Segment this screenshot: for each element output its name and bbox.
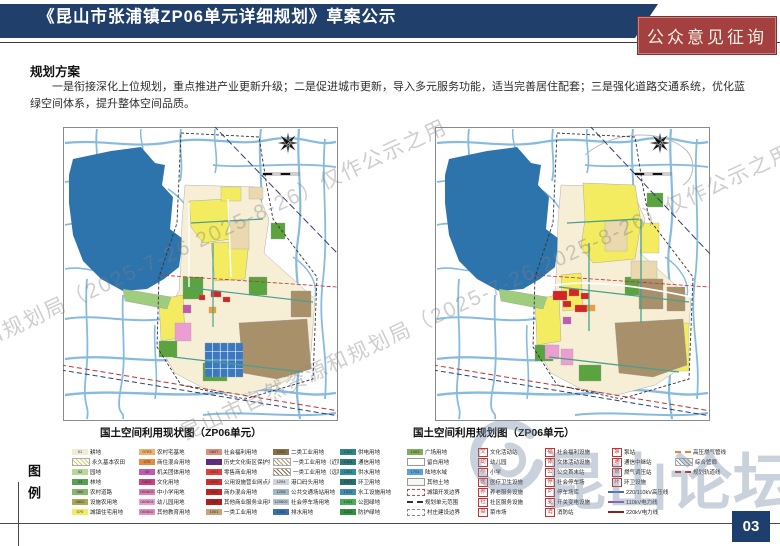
legend-swatch: 1204 xyxy=(273,479,289,486)
kindergarten-icon: 幼 xyxy=(478,458,488,467)
legend-item: 1402防护绿地 xyxy=(340,507,406,517)
legend-swatch: 0906 xyxy=(206,479,222,486)
poster-page: 《昆山市张浦镇ZP06单元详细规划》草案公示 公众意见征询 规划方案 一是衔接深… xyxy=(0,0,780,546)
legend-item: 医医疗卫生设施 xyxy=(474,477,540,487)
legend-swatch: 03 xyxy=(72,479,88,486)
compass-rose-icon xyxy=(277,132,299,154)
telecom-icon: 通 xyxy=(612,458,622,467)
parking-garage-icon: P xyxy=(545,488,555,497)
legend-item-label: 农村道路 xyxy=(90,488,112,496)
legend-item-label: 城镇住宅用地 xyxy=(90,508,123,516)
legend-item-label: 供电用地 xyxy=(358,448,380,456)
legend-item: 消消防站 xyxy=(541,507,607,517)
culture-station-icon: 文 xyxy=(478,448,488,457)
legend-swatch: 0902 xyxy=(206,489,222,496)
legend-item: 环环卫设施 xyxy=(608,477,674,487)
market-icon: 菜 xyxy=(478,508,488,517)
clinic-icon: 医 xyxy=(478,478,488,487)
legend-item-label: 220kV电力线 xyxy=(626,508,658,516)
legend-swatch: 080804 xyxy=(139,499,155,506)
legend-item: 福社会福利设施 xyxy=(541,447,607,457)
legend-item: 1312水工设施用地 xyxy=(340,487,406,497)
community-center-icon: 社 xyxy=(478,498,488,507)
legend-item-label: 通信用地 xyxy=(358,458,380,466)
legend-item-label: 商住混合用地 xyxy=(157,458,190,466)
legend-swatch xyxy=(407,458,425,467)
legend-item-label: 一类工业用地 xyxy=(224,508,257,516)
legend-item-label: 社会福利用地 xyxy=(224,448,257,456)
legend-swatch: 075 xyxy=(139,459,155,466)
legend-item: 规划轨道线 xyxy=(675,467,741,477)
legend-item-label: 防护绿地 xyxy=(358,508,380,516)
legend-swatch: 1402 xyxy=(340,509,356,516)
legend-label: 图例 xyxy=(24,464,43,508)
legend-swatch xyxy=(675,458,693,467)
legend-item: 小小学 xyxy=(474,467,540,477)
legend-item: 停社会停车场 xyxy=(541,477,607,487)
legend-item: 1208公共交通场站用地 xyxy=(273,487,339,497)
legend-item-label: 公交首末站 xyxy=(557,468,585,476)
legend-swatch: 1307 xyxy=(340,479,356,486)
legend-item-label: 消防站 xyxy=(557,508,574,516)
legend-swatch: 1312 xyxy=(340,489,356,496)
legend-item-label: 其他商业服务业用地 xyxy=(224,498,270,506)
legend-item: 080803中小学用地 xyxy=(139,487,205,497)
legend-item: 02园地 xyxy=(72,467,138,477)
legend-item: 养养老服务设施 xyxy=(474,487,540,497)
legend-swatch: 0802 xyxy=(139,479,155,486)
legend-swatch: 1304 xyxy=(340,459,356,466)
legend-item-label: 通信中继站 xyxy=(624,458,652,466)
legend-item: 075商住混合用地 xyxy=(139,457,205,467)
legend-swatch xyxy=(273,468,291,477)
legend-swatch: 1401 xyxy=(340,499,356,506)
legend-item: 永久基本农田 xyxy=(72,457,138,467)
legend-item-label: 园地 xyxy=(90,468,101,476)
legend-item: P停车场库 xyxy=(541,487,607,497)
legend-swatch xyxy=(608,511,624,513)
legend-item-label: 110kV电力线 xyxy=(626,498,658,506)
legend-item-label: 留白用地 xyxy=(427,458,449,466)
legend-item: 高压燃气管线 xyxy=(675,447,741,457)
compass-rose-icon xyxy=(649,132,671,154)
legend-item: 1307环卫用地 xyxy=(340,477,406,487)
legend-item: 08机关团体用地 xyxy=(139,467,205,477)
legend-item-label: 陆地水域 xyxy=(425,468,447,476)
legend-swatch xyxy=(206,459,222,466)
legend-item: 1304通信用地 xyxy=(340,457,406,467)
legend-item-label: 停车场库 xyxy=(557,488,579,496)
legend-item: 060农村道路 xyxy=(72,487,138,497)
legend-item: 1301供水用地 xyxy=(340,467,406,477)
legend-item-label: 永久基本农田 xyxy=(92,458,125,466)
legend-item-label: 文体活动设施 xyxy=(557,458,590,466)
legend-item-label: 社会停车场用地 xyxy=(291,498,330,506)
public-consultation-badge: 公众意见征询 xyxy=(637,16,777,55)
legend-swatch: 0905 xyxy=(206,499,222,506)
legend-item-label: 社会福利设施 xyxy=(557,448,590,456)
welfare-icon: 福 xyxy=(545,448,555,457)
legend-swatch: 1306 xyxy=(273,509,289,516)
legend-item: 变开关变电设施 xyxy=(541,497,607,507)
legend-item-label: 文化用地 xyxy=(157,478,179,486)
legend-item: 城镇开发边界 xyxy=(407,487,473,497)
legend-item: 一类工业用地（远期更新） xyxy=(273,467,339,477)
legend-swatch xyxy=(608,501,624,503)
legend-item: 080802其他教育用地 xyxy=(139,507,205,517)
legend-swatch: 1208 xyxy=(273,489,289,496)
legend-item-label: 规划单元范围 xyxy=(425,498,458,506)
legend-item: 泵泵站 xyxy=(608,447,674,457)
legend-item: 规划单元范围 xyxy=(407,497,473,507)
legend-item-label: 菜市场 xyxy=(490,508,507,516)
legend-item-label: 医疗卫生设施 xyxy=(490,478,523,486)
legend-swatch: 0807 xyxy=(206,449,222,456)
section-paragraph: 一是衔接深化上位规划，重点推进产业更新升级；二是促进城市更新，导入多元服务功能，… xyxy=(30,79,752,113)
legend-item: 1403广场用地 xyxy=(407,447,473,457)
legend-item: 1302供电用地 xyxy=(340,447,406,457)
scale-bar xyxy=(263,173,299,175)
legend-item-label: 规划轨道线 xyxy=(693,468,721,476)
parking-icon: 停 xyxy=(545,478,555,487)
legend-item-label: 供水用地 xyxy=(358,468,380,476)
legend-item-label: 耕地 xyxy=(90,448,101,456)
primary-school-icon: 小 xyxy=(478,468,488,477)
legend-item-label: 环卫用地 xyxy=(358,478,380,486)
legend-item-label: 农村宅基地 xyxy=(157,448,185,456)
legend-swatch: 1301 xyxy=(340,469,356,476)
legend-item-label: 一类工业用地（远期更新） xyxy=(293,468,339,476)
legend-item-label: 其他教育用地 xyxy=(157,508,190,516)
legend-item-label: 林地 xyxy=(90,478,101,486)
map-caption-planning: 国土空间利用规划图（ZP06单元） xyxy=(413,425,575,440)
legend-item: 体文体活动设施 xyxy=(541,457,607,467)
legend-item-label: 商办混合用地 xyxy=(224,488,257,496)
fire-station-icon: 消 xyxy=(545,508,555,517)
map-current-status xyxy=(63,127,338,421)
legend-item-label: 燃气调压站 xyxy=(624,468,652,476)
legend-swatch xyxy=(407,489,425,496)
legend-swatch: 060 xyxy=(72,489,88,496)
legend-item: 1204港口码头用地 xyxy=(273,477,339,487)
legend-item-label: 中小学用地 xyxy=(157,488,185,496)
gas-station-icon: 燃 xyxy=(612,468,622,477)
legend-item: 社社区服务设施 xyxy=(474,497,540,507)
legend: 01耕地永久基本农田02园地03林地060农村道路0602设施农用地070城镇住… xyxy=(72,447,736,517)
legend-item: 历史文化街区保护控制范围 xyxy=(206,457,272,467)
legend-item-label: 历史文化街区保护控制范围 xyxy=(224,458,270,466)
sanitation-icon: 环 xyxy=(612,478,622,487)
legend-item-label: 排水用地 xyxy=(291,508,313,516)
legend-item-label: 公园绿地 xyxy=(358,498,380,506)
legend-item: 0906公用设施营业网点用地 xyxy=(206,477,272,487)
legend-swatch: 01 xyxy=(72,449,88,456)
legend-swatch xyxy=(273,458,291,467)
legend-item-label: 综合管廊 xyxy=(695,458,717,466)
legend-item-label: 公共交通场站用地 xyxy=(291,488,335,496)
legend-swatch: 1403 xyxy=(407,449,423,456)
legend-swatch: 080802 xyxy=(139,509,155,516)
legend-item: 通通信中继站 xyxy=(608,457,674,467)
legend-swatch xyxy=(407,478,425,487)
legend-swatch: 1302 xyxy=(340,449,356,456)
footer-vertical-rule xyxy=(18,482,19,546)
legend-item: 留白用地 xyxy=(407,457,473,467)
legend-item: 菜菜市场 xyxy=(474,507,540,517)
legend-swatch xyxy=(72,458,90,467)
legend-item: 0802文化用地 xyxy=(139,477,205,487)
legend-swatch xyxy=(407,509,425,516)
legend-item: 0602设施农用地 xyxy=(72,497,138,507)
legend-item-label: 港口码头用地 xyxy=(291,478,324,486)
legend-item-label: 村庄建设边界 xyxy=(427,508,460,516)
legend-item: 综合管廊 xyxy=(675,457,741,467)
section-heading: 规划方案 xyxy=(30,61,80,80)
legend-item-label: 幼儿园 xyxy=(490,458,507,466)
legend-item: 1701陆地水域 xyxy=(407,467,473,477)
legend-item: 0901零售商业用地 xyxy=(206,467,272,477)
legend-item-label: 设施农用地 xyxy=(90,498,118,506)
legend-swatch: 070 xyxy=(72,509,88,516)
legend-item: 110kV电力线 xyxy=(608,497,674,507)
legend-item: 220/110kV高压线 xyxy=(608,487,674,497)
legend-item-label: 220/110kV高压线 xyxy=(626,488,668,496)
legend-item: 0703农村宅基地 xyxy=(139,447,205,457)
legend-item-label: 一类工业用地（近期更新） xyxy=(293,458,339,466)
legend-item: 1306排水用地 xyxy=(273,507,339,517)
legend-swatch: 0602 xyxy=(72,499,88,506)
page-title: 《昆山市张浦镇ZP06单元详细规划》草案公示 xyxy=(38,0,396,34)
page-number: 03 xyxy=(732,511,770,542)
legend-swatch: 1002 xyxy=(273,449,289,456)
legend-item: 1002二类工业用地 xyxy=(273,447,339,457)
legend-item: 080804幼儿园用地 xyxy=(139,497,205,507)
legend-item-label: 泵站 xyxy=(624,448,635,456)
legend-swatch: 08 xyxy=(139,469,155,476)
legend-swatch xyxy=(608,491,624,493)
substation-icon: 变 xyxy=(545,498,555,507)
legend-item: 村庄建设边界 xyxy=(407,507,473,517)
legend-swatch xyxy=(675,471,691,473)
legend-swatch: 0703 xyxy=(139,449,155,456)
legend-item-label: 幼儿园用地 xyxy=(157,498,185,506)
legend-swatch: 02 xyxy=(72,469,88,476)
legend-swatch xyxy=(675,451,691,453)
footer-rule xyxy=(0,523,780,524)
legend-item-label: 零售商业用地 xyxy=(224,468,257,476)
legend-swatch: 0901 xyxy=(206,469,222,476)
legend-item-label: 小学 xyxy=(490,468,501,476)
bus-terminal-icon: 公 xyxy=(545,468,555,477)
legend-item-label: 水工设施用地 xyxy=(358,488,391,496)
map-caption-current: 国土空间利用现状图（ZP06单元） xyxy=(100,425,262,440)
legend-item: 0905其他商业服务业用地 xyxy=(206,497,272,507)
legend-item-label: 文化活动站 xyxy=(490,448,518,456)
legend-item-label: 社区服务设施 xyxy=(490,498,523,506)
legend-item-label: 其他土地 xyxy=(427,478,449,486)
legend-item: 220kV电力线 xyxy=(608,507,674,517)
legend-item: 1001一类工业用地 xyxy=(206,507,272,517)
legend-swatch: 080803 xyxy=(139,489,155,496)
legend-item-label: 养老服务设施 xyxy=(490,488,523,496)
legend-item: 0902商办混合用地 xyxy=(206,487,272,497)
legend-item-label: 开关变电设施 xyxy=(557,498,590,506)
legend-item: 070城镇住宅用地 xyxy=(72,507,138,517)
legend-item: 幼幼儿园 xyxy=(474,457,540,467)
legend-item: 0807社会福利用地 xyxy=(206,447,272,457)
sports-icon: 体 xyxy=(545,458,555,467)
legend-item-label: 机关团体用地 xyxy=(157,468,190,476)
legend-swatch: 1701 xyxy=(407,469,423,476)
legend-item-label: 社会停车场 xyxy=(557,478,585,486)
scale-bar xyxy=(635,173,671,175)
legend-item: 1401公园绿地 xyxy=(340,497,406,507)
legend-swatch xyxy=(407,501,423,503)
legend-item: 03林地 xyxy=(72,477,138,487)
legend-item-label: 高压燃气管线 xyxy=(693,448,726,456)
legend-item-label: 城镇开发边界 xyxy=(427,488,460,496)
elderly-care-icon: 养 xyxy=(478,488,488,497)
legend-item: 120802社会停车场用地 xyxy=(273,497,339,507)
legend-item: 燃燃气调压站 xyxy=(608,467,674,477)
legend-item: 文文化活动站 xyxy=(474,447,540,457)
legend-item-label: 二类工业用地 xyxy=(291,448,324,456)
pump-station-icon: 泵 xyxy=(612,448,622,457)
legend-swatch: 1001 xyxy=(206,509,222,516)
legend-item: 其他土地 xyxy=(407,477,473,487)
legend-item-label: 公用设施营业网点用地 xyxy=(224,478,270,486)
legend-item: 01耕地 xyxy=(72,447,138,457)
legend-item-label: 环卫设施 xyxy=(624,478,646,486)
legend-item: 一类工业用地（近期更新） xyxy=(273,457,339,467)
legend-item-label: 广场用地 xyxy=(425,448,447,456)
legend-swatch: 120802 xyxy=(273,499,289,506)
map-planning xyxy=(435,127,710,421)
legend-item: 公公交首末站 xyxy=(541,467,607,477)
